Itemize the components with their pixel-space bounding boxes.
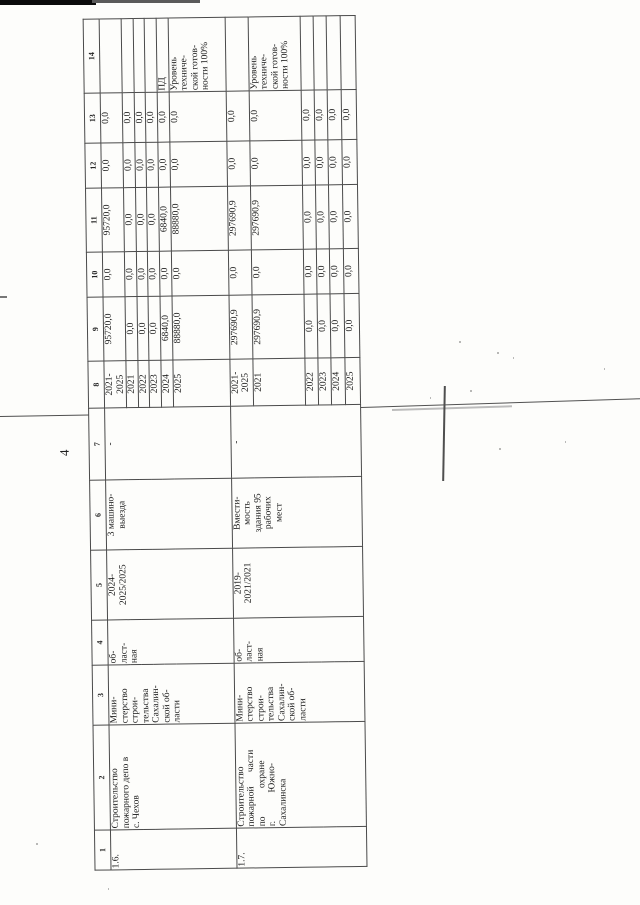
cell-volume-regional: 0,0 <box>146 187 158 251</box>
cell-volume-federal: 0,0 <box>159 251 172 296</box>
cell-year: 2023 <box>317 358 331 405</box>
cell-volume-total: 297690,9 <box>252 294 305 359</box>
cell-expected-result <box>133 18 146 92</box>
cell-year: 2025 <box>344 357 360 404</box>
cell-volume-extra: 0,0 <box>145 92 157 142</box>
cell-volume-local: 0,0 <box>341 139 357 184</box>
cell-volume-local: 0,0 <box>327 140 342 185</box>
cell-volume-local: 0,0 <box>101 143 124 188</box>
cell-volume-total: 0,0 <box>148 296 160 360</box>
cell-expected-result <box>340 15 356 89</box>
cell-capacity: Вмести- мость здания 95 рабочих мест <box>231 476 362 548</box>
cell-volume-total: 0,0 <box>343 293 359 357</box>
cell-volume-extra: 0,0 <box>169 91 227 142</box>
cell-year: 2023 <box>149 360 161 407</box>
column-number-header: 13 <box>84 93 101 143</box>
cell-item-number: 1.7. <box>236 826 367 868</box>
page-number: 4 <box>57 449 73 456</box>
cell-volume-extra: 0,0 <box>122 93 134 143</box>
cell-volume-local: 0,0 <box>157 142 170 187</box>
cell-volume-regional: 0,0 <box>328 185 343 249</box>
cell-volume-local: 0,0 <box>249 140 302 186</box>
cell-volume-regional: 0,0 <box>342 184 358 248</box>
cell-expected-result <box>99 19 122 93</box>
column-number-header: 10 <box>86 252 103 297</box>
column-number-header: 11 <box>86 188 103 252</box>
cell-volume-regional: 6840,0 <box>158 187 171 251</box>
column-number-header: 14 <box>83 19 100 93</box>
cell-year: 2025 <box>172 359 230 407</box>
cell-volume-regional: 297690,9 <box>250 185 303 250</box>
cell-volume-federal: 0,0 <box>329 249 344 294</box>
cell-volume-federal: 0,0 <box>228 250 252 295</box>
cell-construction-period: 2024- 2025/2025 <box>107 548 233 620</box>
rotated-page-content: 4 1 2 3 4 5 6 7 8 9 10 11 12 13 14 1.6. <box>0 0 640 905</box>
cell-volume-federal: 0,0 <box>136 251 148 296</box>
cell-volume-total: 0,0 <box>137 296 149 360</box>
cell-volume-regional: 297690,9 <box>227 186 251 250</box>
cell-volume-federal: 0,0 <box>124 252 136 297</box>
cell-volume-federal: 0,0 <box>147 251 159 296</box>
cell-expected-result: Уровень техниче- ской готов- ности 100% <box>168 17 226 92</box>
cell-volume-local: 0,0 <box>169 141 227 187</box>
cell-volume-local: 0,0 <box>301 140 315 185</box>
cell-volume-total: 6840,0 <box>160 296 173 360</box>
column-number-header: 2 <box>93 725 110 830</box>
cell-volume-extra: 0,0 <box>134 92 146 142</box>
cell-volume-extra: 0,0 <box>157 92 170 142</box>
cell-expected-result <box>326 16 341 90</box>
cell-volume-total: 0,0 <box>125 297 137 361</box>
cell-volume-local: 0,0 <box>314 140 328 185</box>
cell-volume-extra: 0,0 <box>314 90 328 140</box>
cell-year: 2021- 2025 <box>229 359 253 406</box>
cell-expected-result <box>121 19 134 93</box>
cell-expected-result <box>225 17 249 91</box>
cell-volume-total: 297690,9 <box>229 295 253 359</box>
cell-volume-local: 0,0 <box>123 143 135 188</box>
cell-year: 2022 <box>304 358 318 405</box>
cell-ownership-form: об- ласт- ная <box>108 618 234 665</box>
cell-year: 2024 <box>160 360 173 407</box>
cell-volume-regional: 0,0 <box>302 185 316 249</box>
cell-item-number: 1.6. <box>110 828 236 870</box>
cell-ownership-form: об- ласт- ная <box>233 616 364 663</box>
column-number-header: 4 <box>92 620 109 665</box>
cell-volume-extra: 0,0 <box>226 91 250 141</box>
column-number-header: 9 <box>87 297 104 361</box>
cell-executor: Мини- стерство строи- тельства Сахалин- … <box>234 661 365 723</box>
cell-volume-extra: 0,0 <box>100 93 123 143</box>
cell-volume-federal: 0,0 <box>251 249 304 295</box>
cell-object-name: Строительство пожарной части по охране г… <box>234 721 365 828</box>
cell-year: 2021- 2025 <box>104 361 127 408</box>
column-number-header: 5 <box>91 550 108 620</box>
column-number-header: 1 <box>94 830 111 870</box>
cell-volume-regional: 0,0 <box>135 187 147 251</box>
cell-volume-extra: 0,0 <box>327 90 342 140</box>
cell-volume-federal: 0,0 <box>316 249 330 294</box>
cell-volume-total: 95720,0 <box>103 297 126 361</box>
cell-dash: - <box>105 406 231 480</box>
cell-year: 2022 <box>137 360 149 407</box>
scanned-document-page: { "page": { "number": "4" }, "table": { … <box>0 0 640 905</box>
cell-volume-regional: 95720,0 <box>101 188 124 252</box>
cell-expected-result: Уровень техниче- ской готов- ности 100% <box>248 16 301 91</box>
cell-volume-regional: 88880,0 <box>170 186 228 251</box>
column-number-header: 3 <box>92 665 109 725</box>
cell-volume-extra: 0,0 <box>249 90 302 141</box>
cell-construction-period: 2019- 2021/2021 <box>232 546 363 618</box>
construction-program-table: 1 2 3 4 5 6 7 8 9 10 11 12 13 14 1.6. Ст… <box>83 15 367 871</box>
cell-volume-extra: 0,0 <box>301 90 315 140</box>
cell-volume-total: 0,0 <box>329 294 344 358</box>
cell-year: 2021 <box>252 358 305 406</box>
cell-volume-regional: 0,0 <box>123 188 135 252</box>
column-number-header: 7 <box>89 408 106 480</box>
cell-volume-local: 0,0 <box>146 142 158 187</box>
cell-volume-federal: 0,0 <box>102 252 125 297</box>
cell-volume-local: 0,0 <box>226 141 250 186</box>
cell-volume-federal: 0,0 <box>171 250 229 296</box>
cell-dash: - <box>230 404 361 478</box>
cell-volume-total: 88880,0 <box>172 295 230 360</box>
cell-volume-regional: 0,0 <box>315 185 329 249</box>
cell-expected-result <box>313 16 327 90</box>
column-number-header: 8 <box>88 361 105 408</box>
cell-capacity: 3 машино- выезда <box>106 478 232 550</box>
cell-year: 2024 <box>330 358 345 405</box>
cell-year: 2021 <box>126 361 138 408</box>
column-number-header: 12 <box>85 143 102 188</box>
cell-executor: Мини- стерство строи- тельства Сахалин- … <box>108 663 234 725</box>
column-number-header: 6 <box>90 480 107 550</box>
cell-volume-total: 0,0 <box>317 294 331 358</box>
cell-volume-federal: 0,0 <box>303 249 317 294</box>
cell-expected-result <box>144 18 157 92</box>
cell-volume-local: 0,0 <box>134 142 146 187</box>
cell-expected-result: ПД <box>156 18 169 92</box>
cell-volume-federal: 0,0 <box>343 248 359 293</box>
cell-volume-extra: 0,0 <box>341 89 357 139</box>
cell-volume-total: 0,0 <box>304 294 318 358</box>
cell-expected-result <box>300 16 314 90</box>
cell-object-name: Строительство пожарного депо в с. Чехов <box>109 723 236 830</box>
